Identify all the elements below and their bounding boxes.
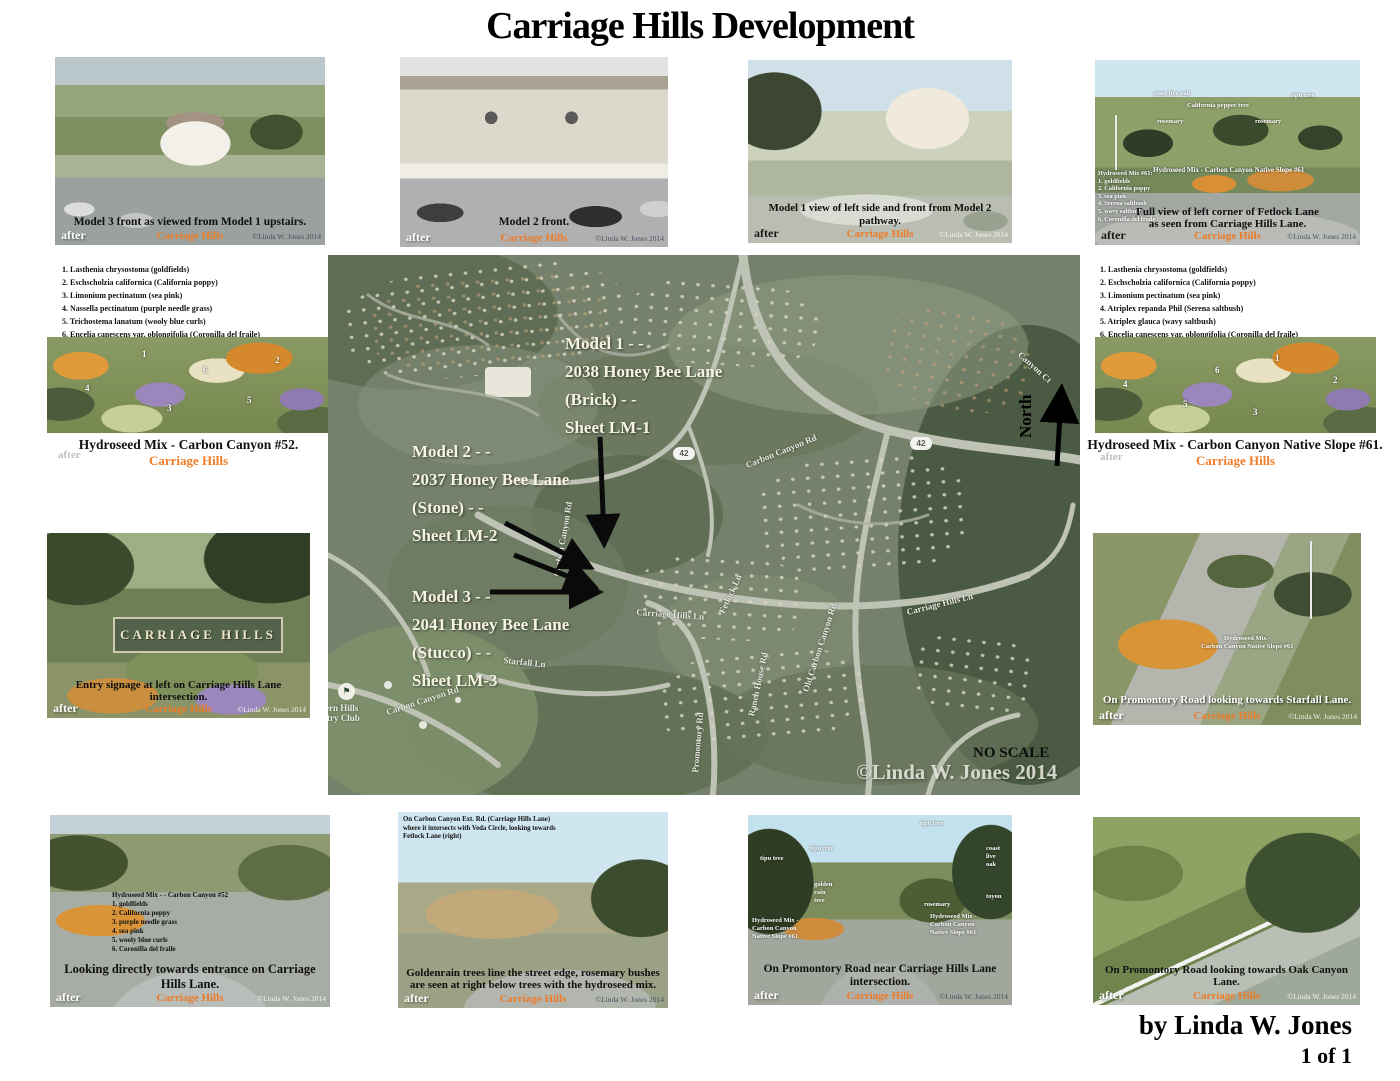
photo-entrance-road: Hydroseed Mix - - Carbon Canyon #52 1. g… xyxy=(50,815,330,1007)
tree-label: tipu tree xyxy=(760,855,784,863)
tree-label: rosemary xyxy=(1255,118,1281,126)
north-arrow-icon xyxy=(1030,384,1080,474)
street-lamp xyxy=(1310,541,1312,619)
tree-label: California pepper tree xyxy=(1187,102,1249,110)
after-label: after xyxy=(1100,451,1123,463)
plant-list-left: 1. Lasthenia chrysostoma (goldfields) 2.… xyxy=(62,263,332,341)
plant-marker: 2 xyxy=(1333,375,1338,385)
plant-item: 5. Atriplex glauca (wavy saltbush) xyxy=(1100,315,1380,328)
credit-label: ©Linda W. Jones 2014 xyxy=(257,994,326,1003)
location-note: On Carbon Canyon Ext. Rd. (Carriage Hill… xyxy=(403,816,556,842)
photo-promontory-starfall: Hydroseed Mix - Carbon Canyon Native Slo… xyxy=(1093,533,1361,725)
photo-caption: On Promontory Road looking towards Oak C… xyxy=(1095,964,1358,989)
street-lamp xyxy=(1115,115,1117,170)
tree-label: tipu tree xyxy=(1291,92,1315,100)
north-indicator: North xyxy=(1030,384,1080,474)
credit-label: ©Linda W. Jones 2014 xyxy=(1287,232,1356,241)
photo-fetlock-corner: coast live oak California pepper tree ro… xyxy=(1095,60,1360,245)
tree-label: rosemary xyxy=(1157,118,1183,126)
tree-label: coast live oak xyxy=(1153,90,1190,98)
hydroseed-caption: Hydroseed Mix - Carbon Canyon Native Slo… xyxy=(1085,437,1385,453)
hydroseed-mix-label: Hydroseed Mix - Carbon Canyon Native Slo… xyxy=(1201,635,1293,651)
after-label: after xyxy=(58,449,81,461)
site-map: Carbon Canyon Rd Carbon Canyon Rd Carria… xyxy=(328,255,1080,795)
plant-item: 3. Limonium pectinatum (sea pink) xyxy=(1100,289,1380,302)
hydroseed-mix-label: Hydroseed Mix - Carbon Canyon Native Slo… xyxy=(752,917,798,940)
photo-caption: Goldenrain trees line the street edge, r… xyxy=(400,967,666,992)
plant-marker: 5 xyxy=(247,395,252,405)
photo-caption: On Promontory Road looking towards Starf… xyxy=(1095,694,1359,707)
hydroseed-caption: Hydroseed Mix - Carbon Canyon #52. xyxy=(47,437,330,453)
plant-item: 2. Eschscholzia californica (California … xyxy=(1100,276,1380,289)
tree-label: tipu tree xyxy=(920,820,944,828)
photo-promontory-intersection: tipu tree tipu tree tipu tree golden rai… xyxy=(748,815,1012,1005)
brand-label: Carriage Hills xyxy=(47,453,330,469)
page-number: 1 of 1 xyxy=(952,1043,1352,1069)
photo-promontory-oak-canyon: On Promontory Road looking towards Oak C… xyxy=(1093,817,1360,1005)
plant-item: 1. Lasthenia chrysostoma (goldfields) xyxy=(62,263,332,276)
entry-sign: CARRIAGE HILLS xyxy=(113,617,283,653)
plant-marker: 1 xyxy=(142,349,147,359)
plant-marker: 6 xyxy=(203,365,208,375)
hydroseed-mix-label: Hydroseed Mix - Carbon Canyon Native Slo… xyxy=(930,913,976,936)
photo-entry-signage: CARRIAGE HILLS Entry signage at left on … xyxy=(47,533,310,718)
plant-item: 4. Nassella pectinatum (purple needle gr… xyxy=(62,302,332,315)
tree-label: rosemary xyxy=(924,901,950,909)
tree-label: tipu tree xyxy=(810,845,834,853)
annotation-arrows xyxy=(328,255,1080,795)
photo-caption: Model 1 view of left side and front from… xyxy=(750,202,1010,227)
author-byline: by Linda W. Jones xyxy=(952,1010,1352,1041)
photo-caption: Model 2 front. xyxy=(402,216,666,229)
credit-label: ©Linda W. Jones 2014 xyxy=(1287,992,1356,1001)
tree-label: toyon xyxy=(986,893,1002,901)
plant-list-right: 1. Lasthenia chrysostoma (goldfields) 2.… xyxy=(1100,263,1380,341)
plant-marker: 4 xyxy=(1123,379,1128,389)
photo-hydroseed-52: 1 2 3 4 5 6 xyxy=(47,337,330,433)
photo-caption: Full view of left corner of Fetlock Lane… xyxy=(1097,206,1358,231)
credit-label: ©Linda W. Jones 2014 xyxy=(939,230,1008,239)
credit-label: ©Linda W. Jones 2014 xyxy=(1288,712,1357,721)
brand-label: Carriage Hills xyxy=(1095,453,1376,469)
photo-model-3-front: Model 3 front as viewed from Model 1 ups… xyxy=(55,57,325,245)
photo-caption: On Promontory Road near Carriage Hills L… xyxy=(750,963,1010,989)
photo-model-2-front: Model 2 front. after Carriage Hills ©Lin… xyxy=(400,57,668,247)
credit-label: ©Linda W. Jones 2014 xyxy=(595,234,664,243)
plant-marker: 2 xyxy=(275,355,280,365)
plant-item: 3. Limonium pectinatum (sea pink) xyxy=(62,289,332,302)
photo-hydroseed-61: 1 2 3 4 5 6 xyxy=(1095,337,1376,433)
plant-marker: 4 xyxy=(85,383,90,393)
north-label: North xyxy=(1016,395,1036,438)
photo-caption: Entry signage at left on Carriage Hills … xyxy=(49,679,308,704)
plant-item: 4. Atriplex repanda Phil (Serena saltbus… xyxy=(1100,302,1380,315)
credit-label: ©Linda W. Jones 2014 xyxy=(939,992,1008,1001)
photo-caption: Looking directly towards entrance on Car… xyxy=(52,962,328,991)
plant-marker: 3 xyxy=(1253,407,1258,417)
plant-marker: 5 xyxy=(1183,399,1188,409)
page-title: Carriage Hills Development xyxy=(0,4,1400,48)
photo-goldenrain-trees: On Carbon Canyon Ext. Rd. (Carriage Hill… xyxy=(398,812,668,1008)
tree-label: golden rain tree xyxy=(814,881,832,904)
plant-item: 2. Eschscholzia californica (California … xyxy=(62,276,332,289)
credit-label: ©Linda W. Jones 2014 xyxy=(237,705,306,714)
plant-marker: 3 xyxy=(167,403,172,413)
hydroseed-mix-label: Hydroseed Mix - Carbon Canyon Native Slo… xyxy=(1153,166,1304,174)
plant-item: 5. Trichostema lanatum (wooly blue curls… xyxy=(62,315,332,328)
plant-marker: 6 xyxy=(1215,365,1220,375)
hydroseed-mix-list: Hydroseed Mix - - Carbon Canyon #52 1. g… xyxy=(112,891,228,954)
plant-marker: 1 xyxy=(1275,353,1280,363)
map-credit: ©Linda W. Jones 2014 xyxy=(856,760,1057,785)
presentation-board: Carriage Hills Development Model 3 front… xyxy=(0,0,1400,1081)
credit-label: ©Linda W. Jones 2014 xyxy=(595,995,664,1004)
plant-item: 1. Lasthenia chrysostoma (goldfields) xyxy=(1100,263,1380,276)
credit-label: ©Linda W. Jones 2014 xyxy=(252,232,321,241)
photo-model-1-left-side: Model 1 view of left side and front from… xyxy=(748,60,1012,243)
tree-label: coast live oak xyxy=(986,845,1000,868)
photo-caption: Model 3 front as viewed from Model 1 ups… xyxy=(57,216,323,229)
